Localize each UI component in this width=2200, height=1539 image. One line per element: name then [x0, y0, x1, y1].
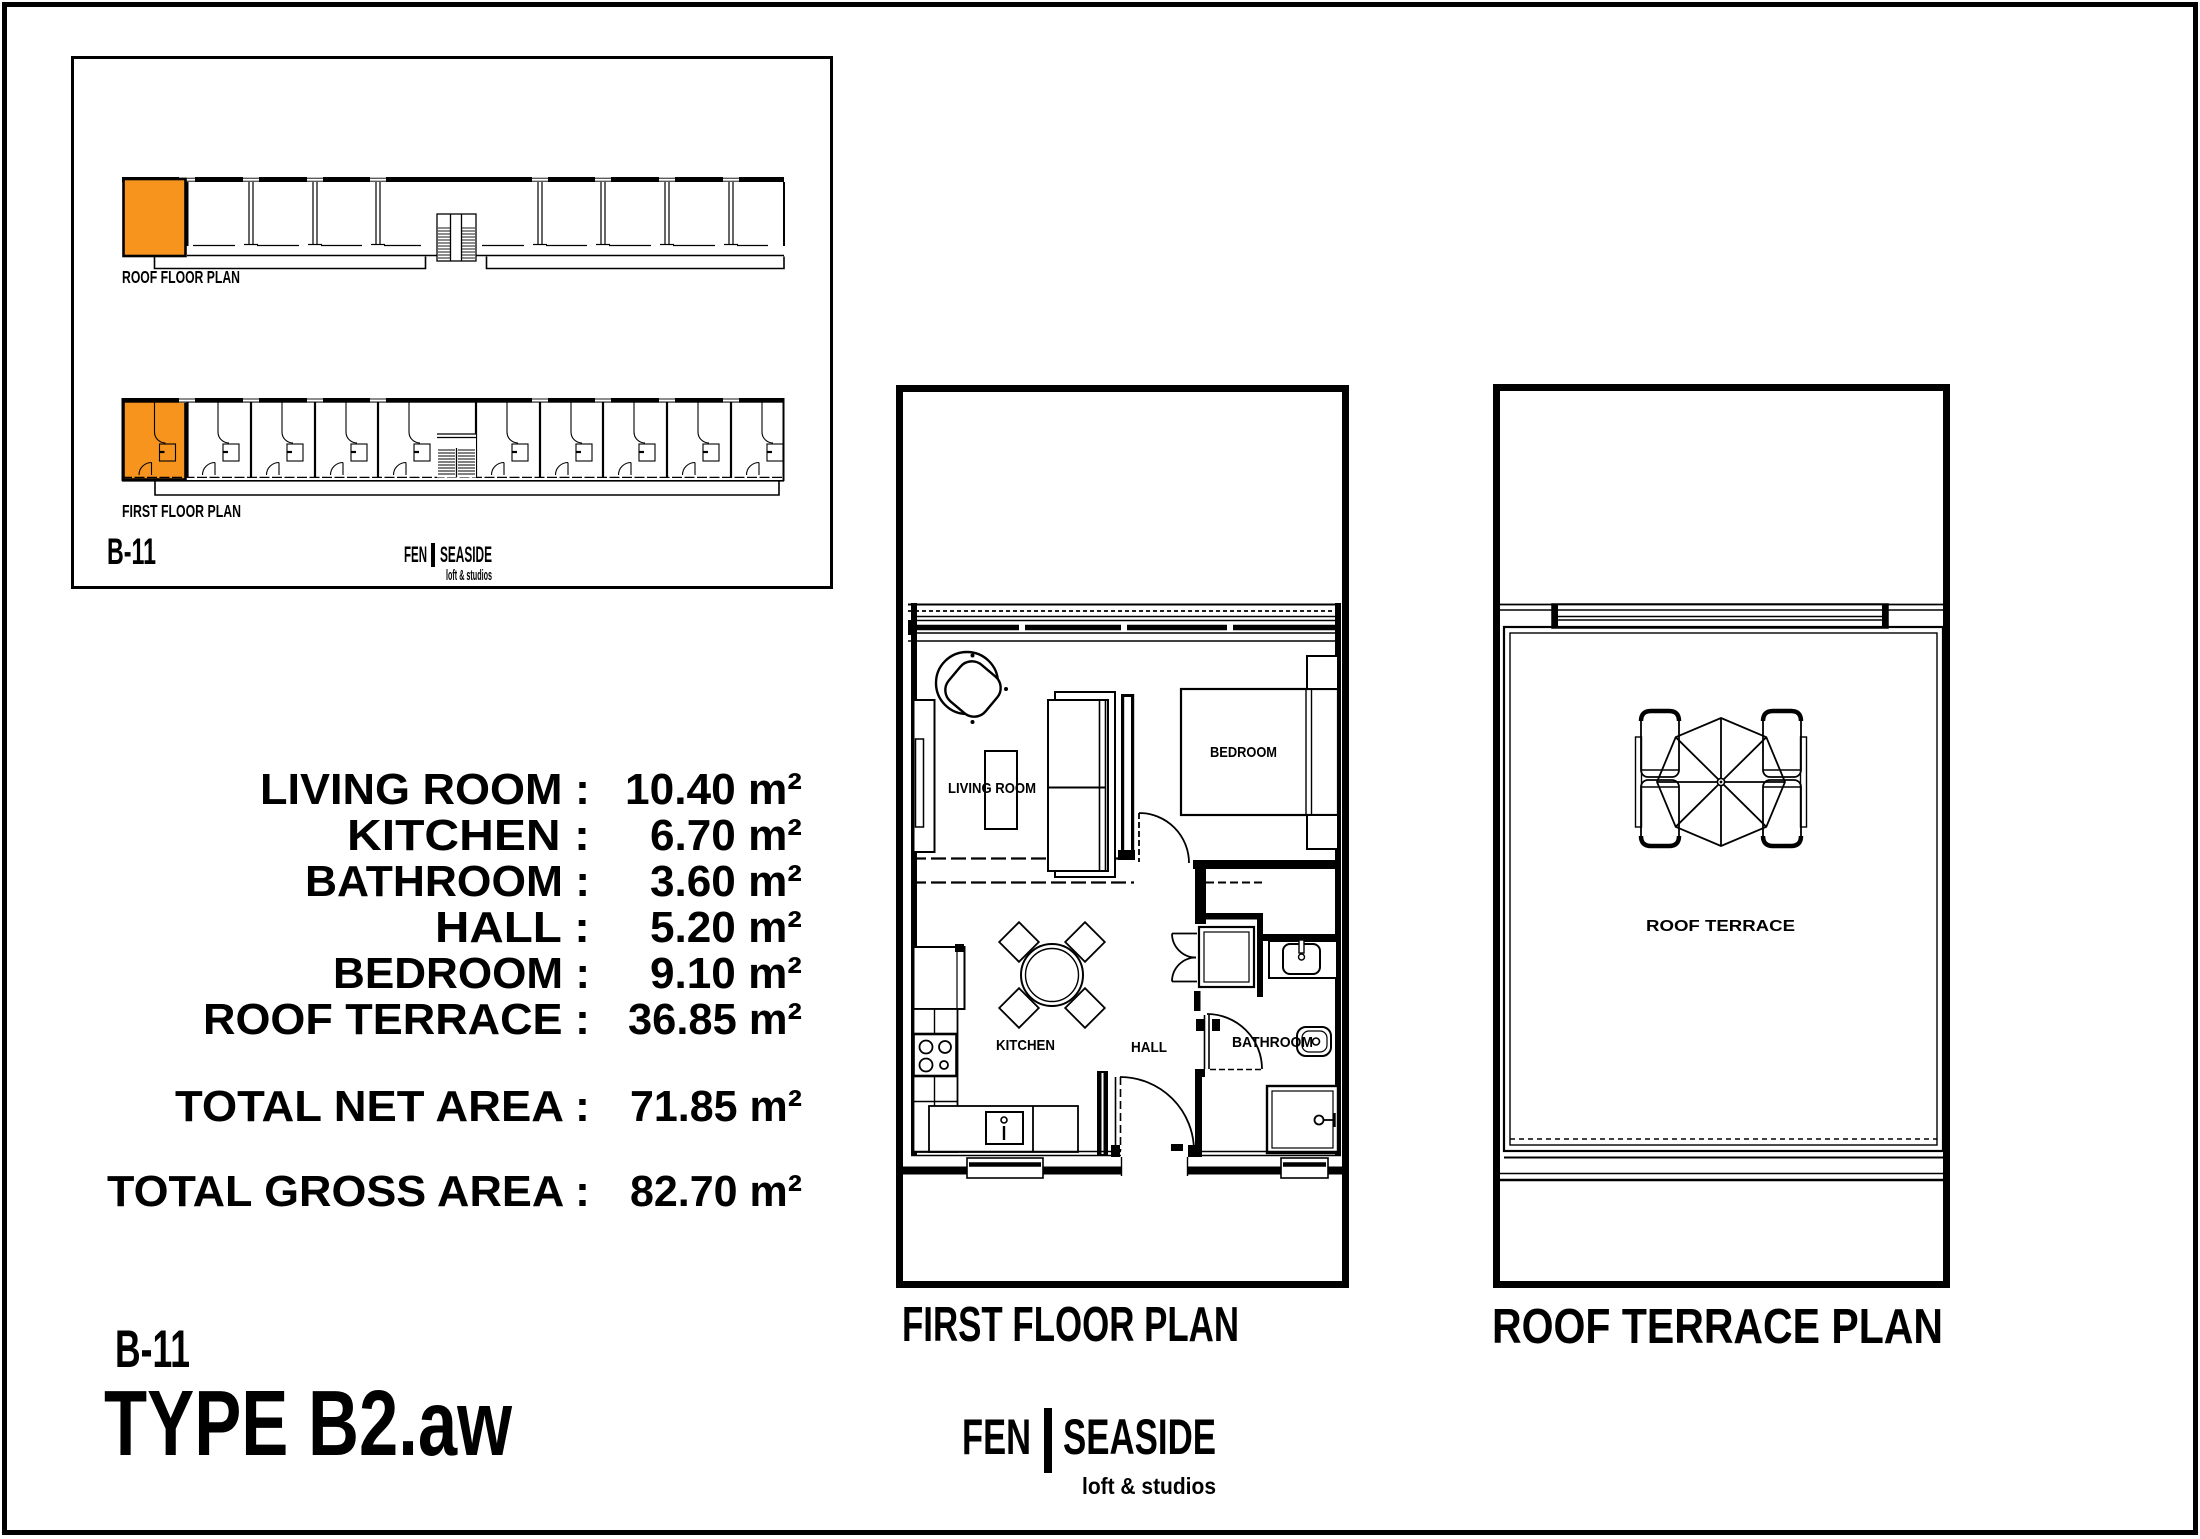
svg-text:FEN: FEN [962, 1409, 1031, 1465]
svg-text:KITCHEN :: KITCHEN : [347, 811, 590, 860]
svg-text:5.20 m²: 5.20 m² [650, 903, 802, 952]
svg-text:BEDROOM :: BEDROOM : [333, 949, 590, 998]
svg-text:9.10 m²: 9.10 m² [650, 949, 802, 998]
svg-text:FEN: FEN [404, 542, 427, 567]
svg-text:ROOF FLOOR PLAN: ROOF FLOOR PLAN [122, 267, 240, 287]
svg-text:FIRST FLOOR PLAN: FIRST FLOOR PLAN [122, 501, 241, 521]
svg-text:HALL :: HALL : [435, 903, 590, 952]
svg-text:ROOF TERRACE: ROOF TERRACE [1646, 918, 1795, 935]
svg-text:BATHROOM :: BATHROOM : [305, 857, 590, 906]
svg-text:HALL: HALL [1131, 1039, 1167, 1056]
svg-text:KITCHEN: KITCHEN [996, 1037, 1055, 1054]
svg-text:LIVING ROOM :: LIVING ROOM : [260, 765, 590, 814]
svg-text:71.85 m²: 71.85 m² [630, 1082, 802, 1131]
svg-text:B-11: B-11 [107, 531, 156, 572]
svg-text:SEASIDE: SEASIDE [1063, 1409, 1216, 1465]
svg-text:FIRST FLOOR PLAN: FIRST FLOOR PLAN [902, 1298, 1239, 1352]
svg-text:10.40 m²: 10.40 m² [625, 765, 802, 814]
svg-text:SEASIDE: SEASIDE [440, 542, 492, 567]
svg-text:TOTAL GROSS AREA :: TOTAL GROSS AREA : [107, 1167, 590, 1216]
svg-text:6.70 m²: 6.70 m² [650, 811, 802, 860]
svg-text:ROOF TERRACE :: ROOF TERRACE : [203, 995, 590, 1044]
svg-text:3.60 m²: 3.60 m² [650, 857, 802, 906]
svg-text:ROOF TERRACE PLAN: ROOF TERRACE PLAN [1492, 1300, 1943, 1354]
svg-text:36.85 m²: 36.85 m² [628, 995, 802, 1044]
svg-text:loft & studios: loft & studios [1082, 1473, 1216, 1499]
svg-text:82.70 m²: 82.70 m² [630, 1167, 802, 1216]
svg-text:TYPE B2.aw: TYPE B2.aw [104, 1371, 512, 1475]
svg-text:loft & studios: loft & studios [446, 567, 492, 584]
svg-text:TOTAL NET AREA :: TOTAL NET AREA : [175, 1082, 590, 1131]
svg-text:BATHROOM: BATHROOM [1232, 1034, 1313, 1051]
svg-text:BEDROOM: BEDROOM [1210, 744, 1277, 761]
svg-text:LIVING ROOM: LIVING ROOM [948, 780, 1036, 797]
